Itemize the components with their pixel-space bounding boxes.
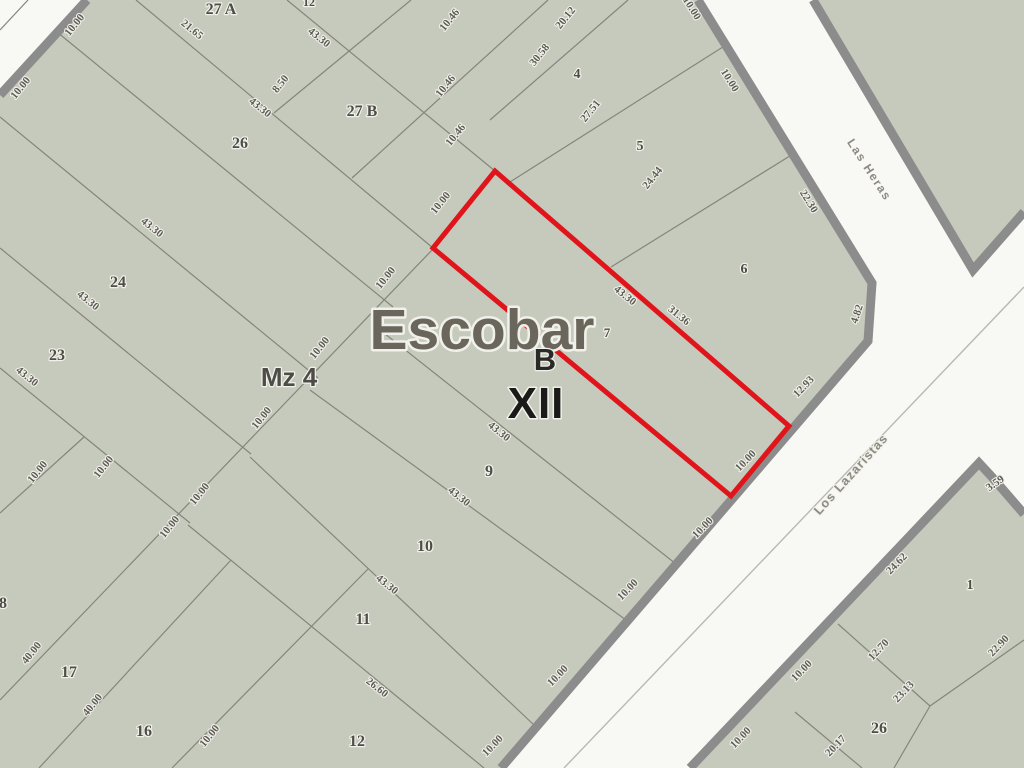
svg-text:27 A: 27 A (206, 1, 237, 18)
svg-text:Escobar: Escobar (370, 298, 595, 362)
svg-text:10: 10 (417, 538, 433, 555)
svg-text:26: 26 (232, 135, 248, 152)
svg-text:8: 8 (0, 595, 7, 612)
svg-text:XII: XII (508, 379, 565, 428)
svg-text:26: 26 (871, 720, 887, 737)
svg-text:12: 12 (349, 733, 365, 750)
svg-text:23: 23 (49, 347, 65, 364)
svg-text:4: 4 (574, 67, 581, 82)
svg-text:27 B: 27 B (347, 103, 378, 120)
svg-text:6: 6 (741, 262, 748, 277)
svg-text:Mz 4: Mz 4 (261, 362, 318, 392)
svg-text:16: 16 (136, 723, 152, 740)
svg-text:17: 17 (61, 664, 77, 681)
svg-text:7: 7 (604, 325, 611, 340)
svg-text:12: 12 (303, 0, 315, 9)
svg-text:9: 9 (485, 463, 493, 480)
svg-text:24: 24 (110, 274, 126, 291)
svg-text:5: 5 (637, 139, 644, 154)
svg-text:11: 11 (355, 611, 370, 628)
svg-text:B: B (534, 342, 556, 377)
svg-text:1: 1 (967, 578, 974, 593)
